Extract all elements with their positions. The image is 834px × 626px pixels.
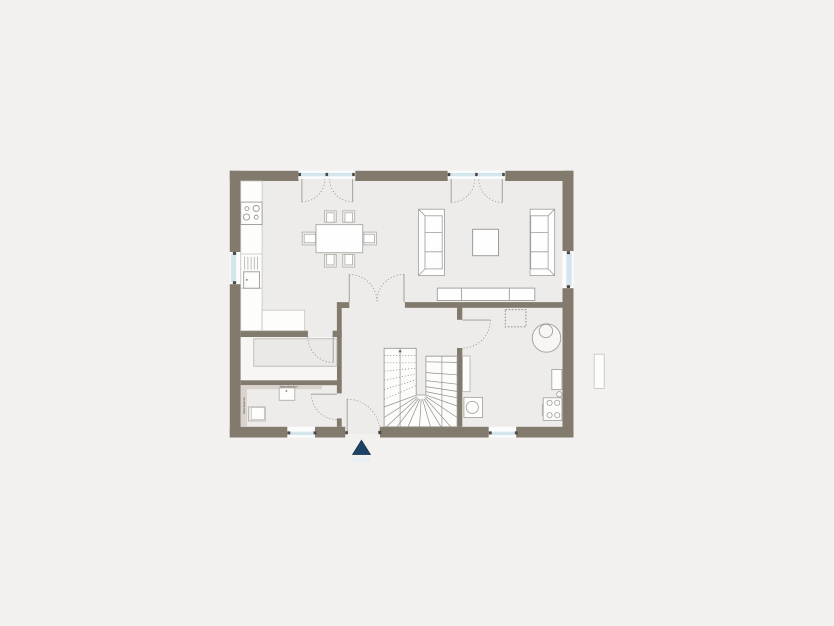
svg-text:Duschwanne: Duschwanne	[242, 397, 246, 414]
